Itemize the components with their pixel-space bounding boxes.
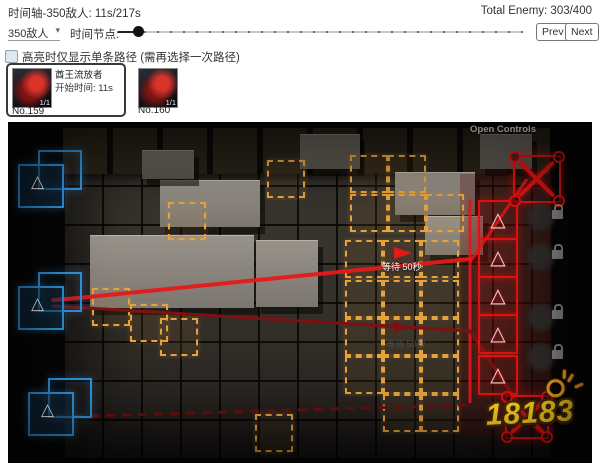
warning-triangle-icon: △ [490, 324, 505, 344]
slider-rail [118, 31, 523, 33]
enemy-avatar: 1/1 [138, 68, 178, 108]
game-map[interactable]: △ △ △ △ △ △ △ [8, 122, 592, 463]
warning-triangle-icon: △ [490, 210, 505, 230]
time-slider[interactable] [118, 24, 523, 40]
spawn-point-marker[interactable]: △ [18, 272, 82, 330]
enemy-number: No.160 [138, 105, 170, 116]
next-button[interactable]: Next [565, 23, 599, 41]
enemy-card-160[interactable]: 1/1 No.160 [134, 65, 198, 115]
chevron-down-icon: ▾ [55, 25, 60, 36]
enemy-start-time: 开始时间: 11s [55, 83, 121, 95]
watermark-18183: 18183 [484, 377, 592, 455]
lock-icon [552, 350, 563, 359]
spawn-point-marker[interactable]: △ [18, 150, 82, 208]
warning-triangle-icon: △ [31, 294, 44, 314]
path-wait-label-dim: 等待 50秒 [386, 337, 426, 350]
corner-dot-icon [509, 151, 521, 163]
time-node-label: 时间节点: [70, 26, 119, 42]
ray-icon [563, 370, 566, 379]
enemy-entry-marker[interactable] [513, 155, 561, 203]
enemy-name: 酋王流放者 [55, 70, 121, 82]
enemy-path-dashed [58, 405, 468, 417]
enemy-count-select-value: 350敌人 [8, 25, 48, 41]
watermark-text: 18183 [485, 394, 575, 433]
path-arrow-icon [394, 247, 412, 259]
slider-handle[interactable] [133, 26, 144, 37]
corner-dot-icon [509, 195, 521, 207]
exit-tile-marker[interactable]: △ [478, 276, 518, 316]
warning-triangle-icon: △ [41, 400, 54, 420]
enemy-avatar: 1/1 [12, 68, 52, 108]
highlight-checkbox[interactable] [5, 50, 18, 63]
exit-tile-marker[interactable]: △ [478, 238, 518, 278]
controls-row: 350敌人 ▾ 时间节点: Prev Next [0, 22, 600, 44]
warning-triangle-icon: △ [31, 172, 44, 192]
path-arrow-icon [394, 321, 410, 333]
open-controls-button[interactable]: Open Controls [470, 124, 536, 135]
warning-triangle-icon: △ [490, 248, 505, 268]
corner-dot-icon [553, 151, 565, 163]
spawn-point-marker[interactable]: △ [28, 378, 92, 436]
enemy-timeline-tool: 时间轴-350敌人: 11s/217s Total Enemy: 303/400… [0, 0, 600, 468]
path-wait-label: 等待 50秒 [382, 260, 422, 273]
exit-tile-marker[interactable]: △ [478, 314, 518, 354]
enemy-card-159[interactable]: 1/1 酋王流放者 开始时间: 11s No.159 [6, 63, 126, 117]
highlight-option-row: 高亮时仅显示单条路径 (需再选择一次路径) [0, 47, 600, 63]
enemy-number: No.159 [12, 106, 44, 117]
timeline-title: 时间轴-350敌人: 11s/217s [8, 5, 141, 21]
warning-triangle-icon: △ [490, 286, 505, 306]
enemy-count-select[interactable]: 350敌人 ▾ [8, 24, 60, 41]
lock-icon [552, 210, 563, 219]
ray-icon [574, 382, 583, 388]
total-enemy-count: Total Enemy: 303/400 [481, 5, 592, 17]
header-row: 时间轴-350敌人: 11s/217s Total Enemy: 303/400 [0, 0, 600, 20]
lock-icon [552, 310, 563, 319]
enemy-card-info: 酋王流放者 开始时间: 11s [55, 70, 121, 95]
lock-icon [552, 250, 563, 259]
